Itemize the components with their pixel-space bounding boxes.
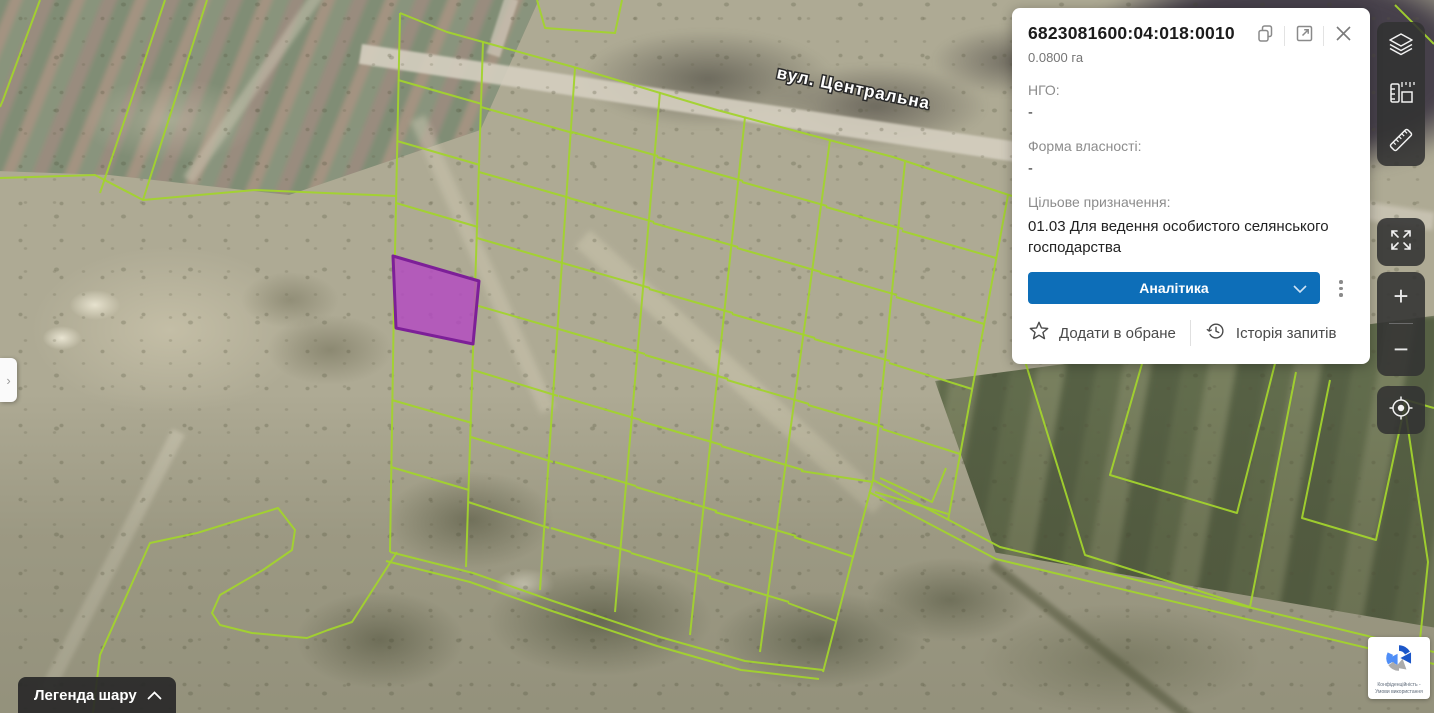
plus-icon: +: [1393, 283, 1408, 309]
parcel-line: [1404, 402, 1428, 640]
minus-icon: −: [1393, 336, 1408, 362]
close-panel-button[interactable]: [1332, 25, 1354, 47]
measure-area-button[interactable]: [1377, 70, 1425, 118]
query-history-label: Історія запитів: [1236, 325, 1337, 342]
field-value-ownership: -: [1028, 161, 1354, 177]
app-window: вул. Центральна 6823081600:04:018:0010: [0, 0, 1434, 713]
layer-legend-label: Легенда шару: [34, 687, 137, 704]
recaptcha-terms: Конфіденційність - Умови використання: [1371, 682, 1427, 696]
field-value-purpose: 01.03 Для ведення особистого селянського…: [1028, 217, 1354, 258]
layers-icon: [1387, 30, 1415, 63]
parcel-id: 6823081600:04:018:0010: [1028, 23, 1235, 44]
parcel-line: [788, 207, 903, 621]
copy-icon: [1256, 24, 1275, 48]
star-icon: [1028, 320, 1050, 346]
fullscreen-group: [1377, 218, 1425, 266]
add-to-favorites-button[interactable]: Додати в обране: [1028, 320, 1176, 346]
zoom-control: + −: [1377, 272, 1425, 376]
divider: [1323, 26, 1324, 46]
selected-parcel[interactable]: [393, 256, 479, 344]
zoom-in-button[interactable]: +: [1377, 272, 1425, 320]
parcel-line: [537, 0, 622, 33]
parcel-line: [390, 552, 823, 670]
parcel-line: [468, 107, 573, 528]
fullscreen-icon: [1388, 227, 1414, 258]
parcel-line: [1020, 345, 1296, 607]
chevron-up-icon: [147, 687, 162, 704]
zoom-out-button[interactable]: −: [1377, 327, 1425, 371]
open-in-new-icon: [1295, 24, 1314, 48]
field-label-ownership: Форма власності:: [1028, 138, 1354, 154]
parcel-line: [869, 492, 1434, 664]
recaptcha-badge[interactable]: Конфіденційність - Умови використання: [1368, 637, 1430, 699]
parcel-line: [709, 182, 827, 602]
parcel-line: [823, 162, 905, 672]
locate-button[interactable]: [1377, 386, 1425, 434]
chevron-down-icon: [1292, 281, 1308, 297]
close-icon: [1335, 25, 1352, 47]
ruler-button[interactable]: [1377, 118, 1425, 166]
parcel-line: [0, 0, 40, 107]
parcel-line: [873, 480, 1434, 652]
analytics-button[interactable]: Аналітика: [1028, 272, 1320, 304]
history-icon: [1205, 320, 1227, 346]
parcel-line: [0, 175, 396, 200]
parcel-area: 0.0800 га: [1028, 50, 1354, 65]
field-label-purpose: Цільове призначення:: [1028, 194, 1354, 210]
locate-group: [1377, 386, 1425, 434]
street-label: вул. Центральна: [775, 63, 932, 113]
open-in-new-button[interactable]: [1293, 25, 1315, 47]
layers-button[interactable]: [1377, 22, 1425, 70]
parcel-line: [143, 0, 207, 200]
left-panel-toggle[interactable]: ›: [0, 358, 17, 402]
divider: [1190, 320, 1191, 346]
query-history-button[interactable]: Історія запитів: [1205, 320, 1337, 346]
more-options-button[interactable]: [1328, 276, 1354, 301]
parcel-line: [948, 195, 1008, 520]
parcel-line: [760, 140, 830, 652]
divider: [1284, 26, 1285, 46]
field-value-ngo: -: [1028, 105, 1354, 121]
add-to-favorites-label: Додати в обране: [1059, 325, 1176, 342]
chevron-right-icon: ›: [6, 373, 10, 388]
map-tools-group: [1377, 22, 1425, 166]
ruler-icon: [1386, 125, 1416, 160]
divider: [1389, 323, 1413, 324]
recaptcha-icon: [1382, 641, 1416, 680]
layer-legend-button[interactable]: Легенда шару: [18, 677, 176, 713]
field-label-ngo: НГО:: [1028, 82, 1354, 98]
analytics-button-label: Аналітика: [1139, 280, 1208, 296]
measure-area-icon: [1387, 78, 1415, 111]
copy-button[interactable]: [1254, 25, 1276, 47]
parcel-info-panel: 6823081600:04:018:0010: [1012, 8, 1370, 364]
locate-icon: [1387, 394, 1415, 427]
fullscreen-button[interactable]: [1377, 218, 1425, 266]
